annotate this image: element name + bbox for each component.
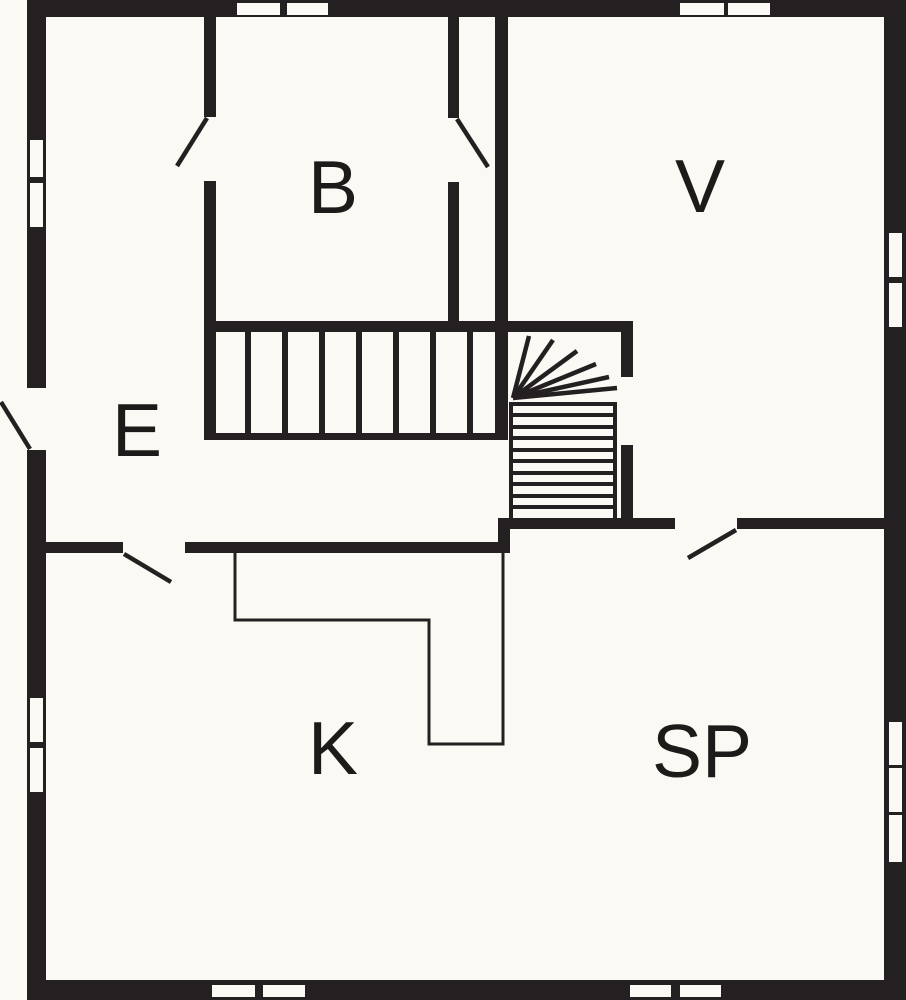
window-right-4 xyxy=(889,768,902,812)
window-top-3 xyxy=(680,3,724,15)
exterior-wall-top xyxy=(27,0,906,17)
window-left-3 xyxy=(30,698,43,742)
window-bottom-1 xyxy=(212,985,255,997)
window-bottom-4 xyxy=(680,985,721,997)
window-right-3 xyxy=(889,722,902,765)
floorplan-canvas: BVEKSP xyxy=(0,0,906,1000)
floor-background xyxy=(0,0,906,1000)
window-right-5 xyxy=(889,815,902,862)
room-label-v: V xyxy=(675,144,725,228)
wall-stair-right-lower xyxy=(621,445,633,519)
room-label-e: E xyxy=(112,388,162,472)
window-left-4 xyxy=(30,748,43,792)
entry-door-gap xyxy=(27,388,46,450)
wall-b-right-upper xyxy=(448,17,459,118)
window-bottom-2 xyxy=(263,985,305,997)
window-bottom-3 xyxy=(630,985,671,997)
wall-b-left-upper xyxy=(204,17,216,117)
wall-v-left xyxy=(495,17,508,437)
wall-stair-bottom-east xyxy=(737,518,886,529)
wall-stair-right-upper xyxy=(621,332,633,377)
window-right-2 xyxy=(889,283,902,327)
wall-b-right-lower xyxy=(448,182,459,332)
floor-plan-svg: BVEKSP xyxy=(0,0,906,1000)
wall-b-left-lower xyxy=(204,181,216,440)
exterior-wall-bottom xyxy=(27,980,906,1000)
window-top-4 xyxy=(728,3,770,15)
window-left-2 xyxy=(30,183,43,227)
window-left-1 xyxy=(30,140,43,177)
wall-stair-top xyxy=(204,321,633,332)
wall-e-k-east xyxy=(185,542,508,553)
room-label-b: B xyxy=(308,145,358,229)
room-label-sp: SP xyxy=(652,709,752,793)
window-right-1 xyxy=(889,233,902,277)
wall-e-k-west xyxy=(46,542,123,553)
window-top-1 xyxy=(237,3,280,15)
window-top-2 xyxy=(287,3,328,15)
wall-stair-bottom-west xyxy=(498,518,675,529)
room-label-k: K xyxy=(308,706,358,790)
